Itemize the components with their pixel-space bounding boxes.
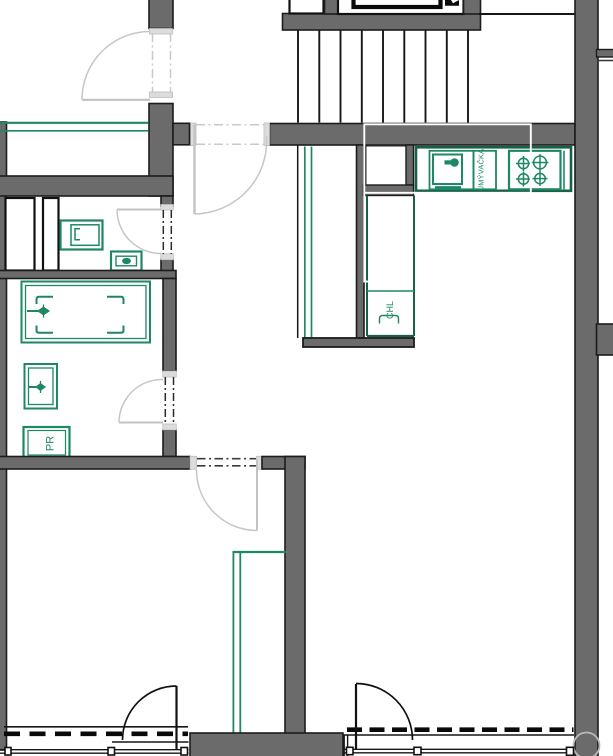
svg-text:UMÝVAČKA: UMÝVAČKA [476,149,485,192]
svg-text:PR: PR [44,436,56,451]
svg-text:CHL: CHL [385,301,395,319]
